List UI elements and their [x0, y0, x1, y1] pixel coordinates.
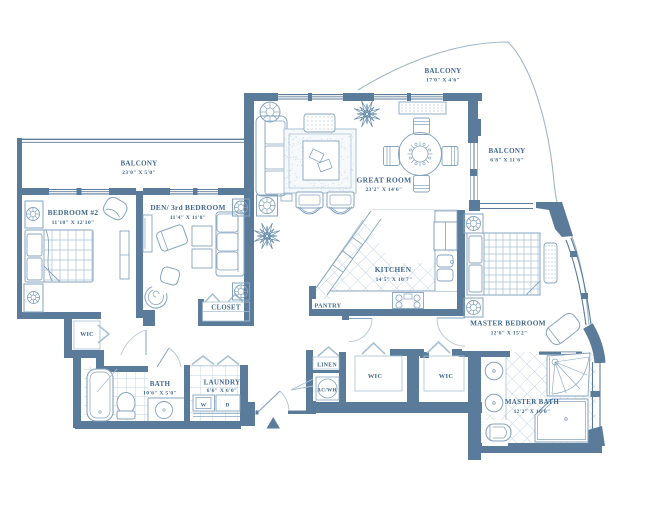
svg-text:11'4" X 11'0": 11'4" X 11'0" — [170, 215, 206, 221]
svg-text:LAUNDRY: LAUNDRY — [204, 379, 241, 387]
svg-text:LINEN: LINEN — [317, 363, 337, 369]
svg-text:WIC: WIC — [80, 331, 94, 338]
svg-text:CLOSET: CLOSET — [211, 305, 241, 312]
svg-text:D: D — [225, 403, 229, 409]
svg-text:14'5" X 10'7": 14'5" X 10'7" — [376, 277, 413, 283]
svg-text:23'2" X 14'6": 23'2" X 14'6" — [366, 187, 403, 193]
svg-text:12'2" X 10'0": 12'2" X 10'0" — [514, 409, 551, 415]
svg-text:11'10" X 12'10": 11'10" X 12'10" — [52, 220, 95, 226]
svg-text:AC/WH: AC/WH — [317, 388, 337, 394]
svg-text:12'6" X 15'2": 12'6" X 15'2" — [491, 331, 528, 337]
svg-text:BEDROOM #2: BEDROOM #2 — [48, 208, 99, 217]
svg-text:BALCONY: BALCONY — [424, 67, 461, 75]
svg-text:17'0" X 4'6": 17'0" X 4'6" — [426, 78, 460, 84]
svg-text:BALCONY: BALCONY — [488, 147, 525, 155]
svg-text:10'6" X 5'0": 10'6" X 5'0" — [143, 391, 177, 397]
svg-text:W: W — [201, 403, 207, 409]
svg-text:GREAT ROOM: GREAT ROOM — [356, 176, 411, 185]
svg-text:WIC: WIC — [368, 373, 383, 380]
svg-text:PANTRY: PANTRY — [315, 303, 342, 310]
svg-text:MASTER BEDROOM: MASTER BEDROOM — [470, 319, 546, 328]
svg-text:BALCONY: BALCONY — [120, 160, 157, 168]
svg-text:KITCHEN: KITCHEN — [375, 265, 412, 274]
svg-text:23'0" X 5'0": 23'0" X 5'0" — [122, 170, 156, 176]
svg-text:WIC: WIC — [439, 373, 454, 380]
svg-text:BATH: BATH — [150, 380, 171, 388]
svg-text:DEN/ 3rd BEDROOM: DEN/ 3rd BEDROOM — [150, 203, 225, 212]
svg-text:6'8" X 11'6": 6'8" X 11'6" — [490, 158, 523, 164]
svg-text:MASTER BATH: MASTER BATH — [505, 398, 560, 406]
svg-text:6'6" X 6'0": 6'6" X 6'0" — [207, 388, 238, 394]
